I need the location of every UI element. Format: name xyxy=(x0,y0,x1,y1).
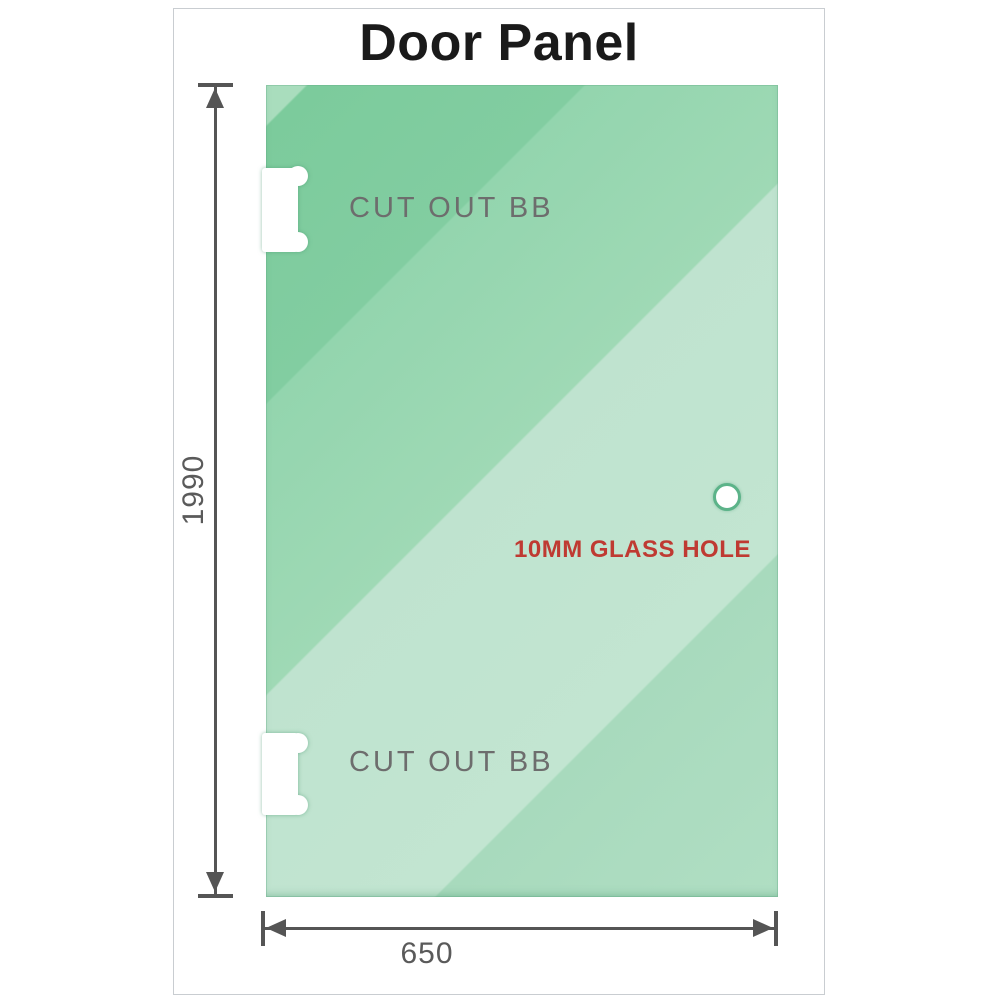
bb-cutout-shape-icon xyxy=(262,166,308,252)
width-dim-right-cap xyxy=(774,911,778,946)
hinge-cutout-bottom xyxy=(262,729,310,823)
width-dim-left-cap xyxy=(261,911,265,946)
page-title: Door Panel xyxy=(173,14,825,74)
width-dimension-line xyxy=(265,927,774,930)
cutout-bottom-label: CUT OUT BB xyxy=(349,746,554,779)
glass-hole xyxy=(713,483,741,511)
arrow-right-icon xyxy=(753,919,773,937)
bb-cutout-shape-icon xyxy=(262,733,308,815)
glass-hole-label: 10MM GLASS HOLE xyxy=(514,536,751,564)
height-dimension-value: 1990 xyxy=(177,455,211,526)
height-dim-bottom-cap xyxy=(198,894,233,898)
arrow-left-icon xyxy=(266,919,286,937)
height-dim-top-cap xyxy=(198,83,233,87)
door-panel-drawing: Door Panel CUT OUT BB CUT OUT BB 10MM GL… xyxy=(0,0,1000,1000)
hinge-cutout-top xyxy=(262,164,310,258)
width-dimension-value: 650 xyxy=(400,937,453,971)
cutout-top-label: CUT OUT BB xyxy=(349,192,554,225)
arrow-down-icon xyxy=(206,872,224,892)
height-dimension-line xyxy=(214,85,217,895)
arrow-up-icon xyxy=(206,88,224,108)
